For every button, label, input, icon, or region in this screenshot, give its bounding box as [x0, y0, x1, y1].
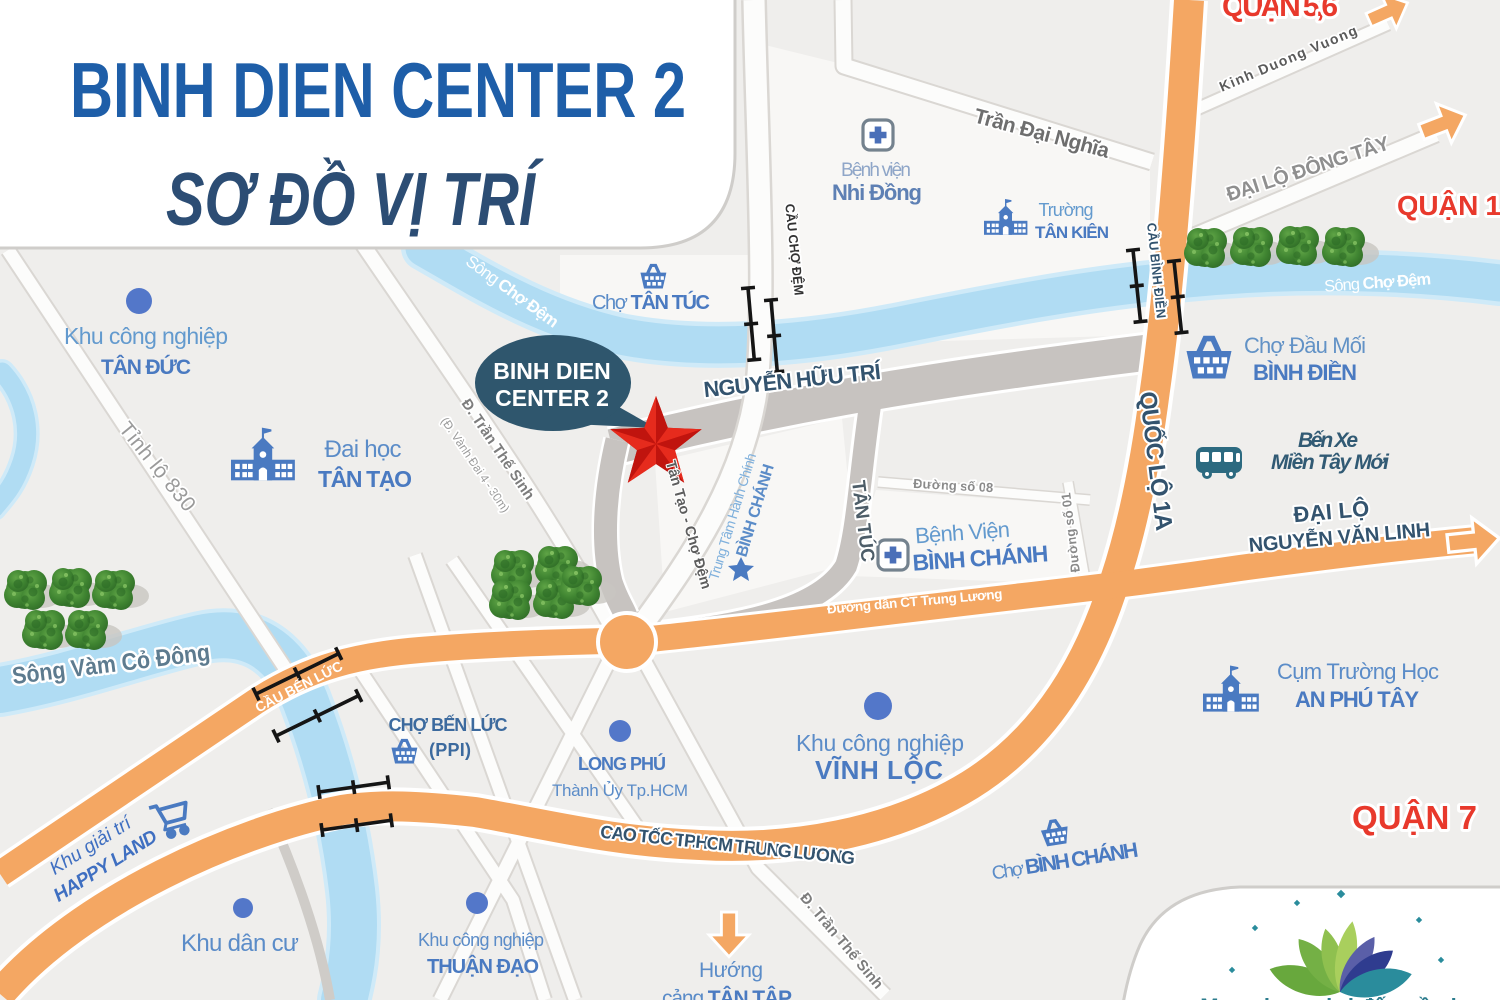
- svg-text:Khu công nghiệp: Khu công nghiệp: [796, 730, 964, 756]
- svg-text:VĨNH LỘC: VĨNH LỘC: [815, 755, 943, 785]
- svg-text:QUẬN 7: QUẬN 7: [1352, 799, 1477, 836]
- svg-text:BINH DIEN: BINH DIEN: [493, 358, 611, 384]
- svg-text:Khu công nghiệp: Khu công nghiệp: [64, 323, 228, 349]
- svg-text:Chợ TÂN TÚC: Chợ TÂN TÚC: [592, 290, 710, 314]
- svg-text:THUẬN ĐẠO: THUẬN ĐẠO: [427, 954, 539, 978]
- svg-text:SƠ ĐỒ VỊ TRÍ: SƠ ĐỒ VỊ TRÍ: [166, 157, 544, 241]
- svg-text:Cụm Trường Học: Cụm Trường Học: [1277, 659, 1439, 684]
- svg-text:Hướng: Hướng: [699, 959, 763, 982]
- svg-text:Chợ Đầu Mối: Chợ Đầu Mối: [1244, 333, 1366, 358]
- svg-text:Miền Tây Mới: Miền Tây Mới: [1271, 451, 1390, 474]
- svg-text:AN PHÚ TÂY: AN PHÚ TÂY: [1295, 687, 1419, 712]
- svg-text:Trường: Trường: [1039, 200, 1094, 220]
- svg-text:BÌNH ĐIỀN: BÌNH ĐIỀN: [1253, 360, 1357, 385]
- svg-text:CHỢ BẾN LỨC: CHỢ BẾN LỨC: [389, 714, 508, 735]
- svg-text:BINH DIEN CENTER 2: BINH DIEN CENTER 2: [70, 46, 686, 134]
- svg-text:CENTER 2: CENTER 2: [495, 385, 609, 411]
- svg-text:Bến Xe: Bến Xe: [1298, 429, 1358, 452]
- svg-text:Khu dân cư: Khu dân cư: [181, 930, 299, 957]
- svg-text:LONG PHÚ: LONG PHÚ: [578, 753, 666, 774]
- svg-text:(PPI): (PPI): [429, 740, 471, 760]
- svg-text:Mang hưng lợi đến gần bạn: Mang hưng lợi đến gần bạn: [1200, 994, 1489, 1000]
- svg-text:cảng TÂN TẬP: cảng TÂN TẬP: [662, 986, 792, 1000]
- svg-text:Nhi Đồng: Nhi Đồng: [832, 180, 922, 205]
- svg-text:Khu công nghiệp: Khu công nghiệp: [418, 930, 544, 950]
- svg-text:Đai học: Đai học: [325, 436, 402, 463]
- svg-text:QUẬN 5,6: QUẬN 5,6: [1222, 0, 1338, 23]
- svg-text:QUẬN 1: QUẬN 1: [1397, 190, 1500, 221]
- svg-text:TÂN ĐỨC: TÂN ĐỨC: [101, 355, 191, 379]
- svg-text:Bệnh viện: Bệnh viện: [841, 160, 911, 181]
- svg-text:TÂN TẠO: TÂN TẠO: [318, 465, 412, 492]
- svg-text:Thành Ủy Tp.HCM: Thành Ủy Tp.HCM: [552, 781, 688, 800]
- svg-text:TÂN KIÊN: TÂN KIÊN: [1035, 223, 1109, 242]
